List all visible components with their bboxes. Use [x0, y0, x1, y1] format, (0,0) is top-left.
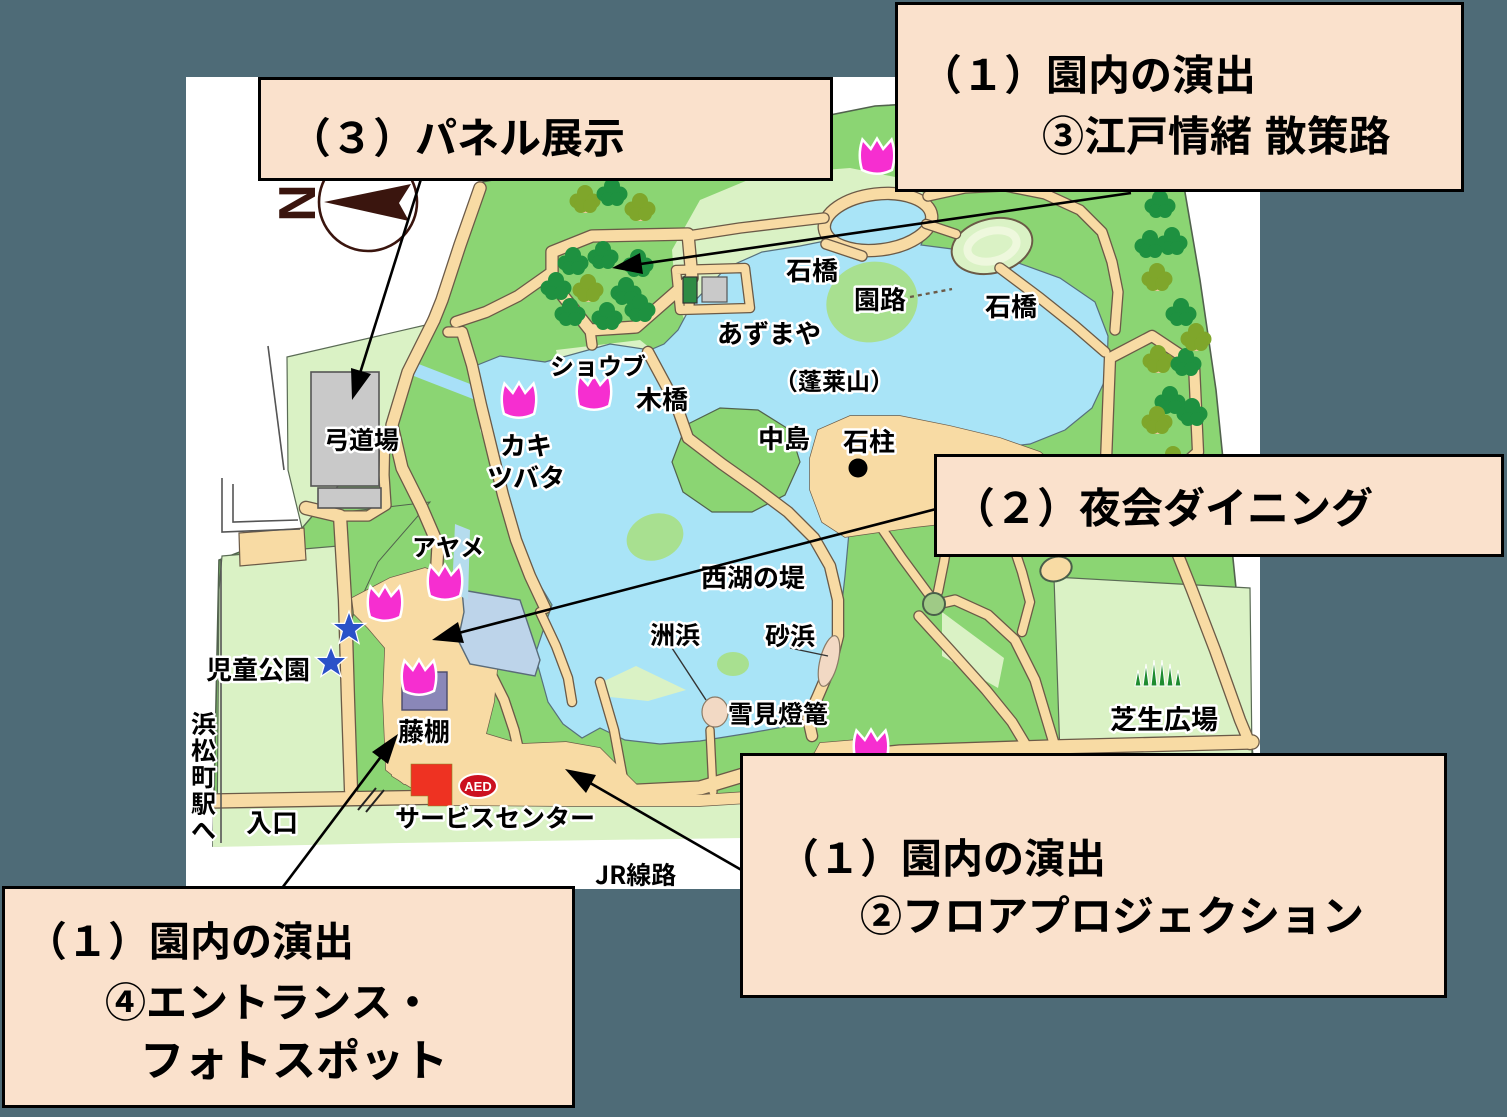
svg-text:AED: AED [464, 779, 491, 794]
svg-text:N: N [269, 184, 327, 222]
